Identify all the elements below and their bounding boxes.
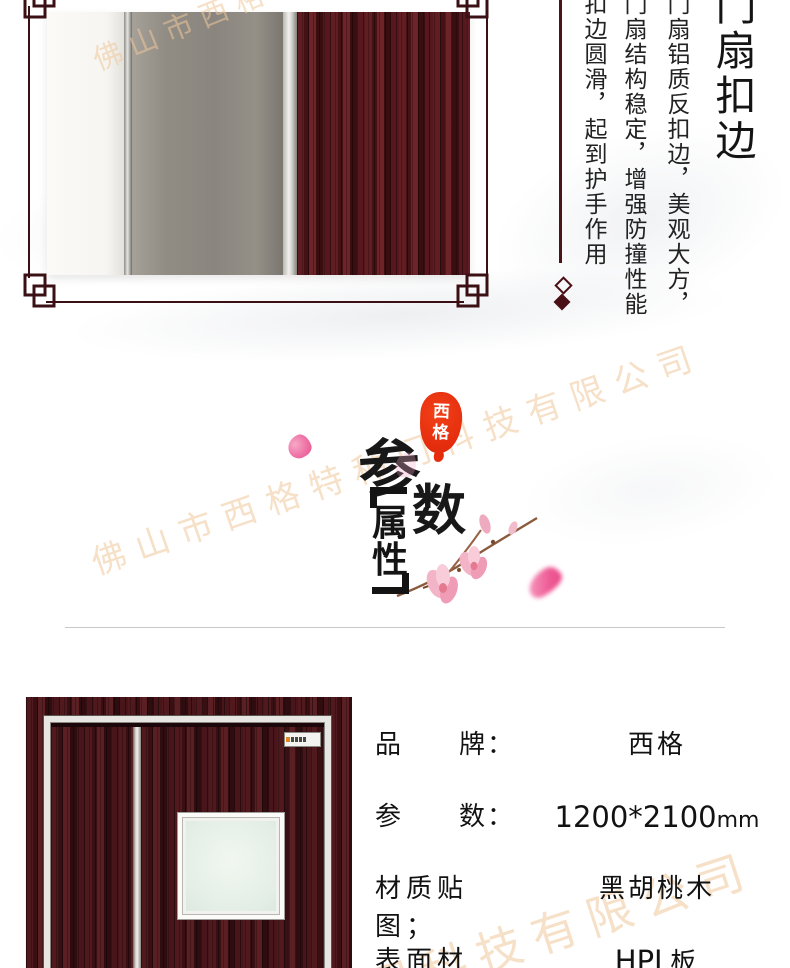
spec-row-texture: 材质贴图； 黑胡桃木 xyxy=(375,870,787,946)
corner-knot-icon xyxy=(453,270,491,308)
frame-line-left xyxy=(28,6,30,278)
aluminum-edge-line xyxy=(124,12,132,275)
product-detail-page: 门扇扣边 门扇铝质反扣边，美观大方， 门扇结构稳定，增强防撞性能 扣边圆滑，起到… xyxy=(0,0,790,968)
door-edge-photo xyxy=(47,12,470,275)
spec-row-size: 参 数： 1200*2100mm xyxy=(375,798,787,840)
section-subtitle: 属 性 xyxy=(372,505,406,579)
spec-label: 材质贴图； xyxy=(375,870,527,946)
door-product-photo xyxy=(25,697,352,968)
wood-grain-panel xyxy=(297,12,470,275)
accent-vertical-line xyxy=(559,0,562,263)
spec-value: 西格 xyxy=(527,726,787,764)
spec-row-surface: 表面材质： HPL板 xyxy=(375,942,787,968)
logo-chip xyxy=(286,737,290,742)
door-frame-right xyxy=(330,697,352,968)
frame-line-bottom xyxy=(46,301,464,303)
hero-title: 门扇扣边 xyxy=(702,0,762,164)
seal-char-top: 西 xyxy=(433,403,451,422)
spec-value: 1200*2100mm xyxy=(527,798,787,840)
hero-desc-col: 门扇结构稳定，增强防撞性能 xyxy=(616,0,650,317)
hero-desc-col: 门扇铝质反扣边，美观大方， xyxy=(659,0,693,317)
frosted-glass xyxy=(186,821,276,911)
attr-char-1: 属 xyxy=(372,505,406,542)
brand-seal-stamp: 西 格 xyxy=(419,391,463,453)
frame-line-right xyxy=(486,6,488,278)
spec-row-brand: 品 牌： 西格 xyxy=(375,726,787,764)
diamond-outline-icon xyxy=(554,276,572,294)
spec-value: HPL板 xyxy=(527,942,787,968)
door-vision-window xyxy=(177,812,285,920)
spec-label: 表面材质： xyxy=(375,942,527,968)
aluminum-channel-panel xyxy=(132,12,283,275)
door-frame-left xyxy=(26,697,46,968)
diamond-filled-icon xyxy=(554,294,571,311)
corner-knot-icon xyxy=(21,270,59,308)
aluminum-mullion-strip xyxy=(133,727,141,968)
hero-desc-col: 扣边圆滑，起到护手作用 xyxy=(576,0,610,267)
spec-label: 参 数： xyxy=(375,798,527,836)
seal-char-bottom: 格 xyxy=(432,424,450,443)
section-divider xyxy=(65,627,725,628)
attr-char-2: 性 xyxy=(372,542,406,579)
spec-label: 品 牌： xyxy=(375,726,527,764)
section-word-2: 数 xyxy=(412,466,466,545)
door-frame-top xyxy=(26,697,352,718)
corner-knot-icon xyxy=(453,0,491,22)
spec-value: 黑胡桃木 xyxy=(527,870,787,908)
door-logo-plate xyxy=(284,732,321,747)
door-face-white-panel xyxy=(47,12,124,275)
door-leaf-narrow xyxy=(51,727,133,968)
corner-knot-icon xyxy=(21,0,59,22)
petal-decoration xyxy=(285,432,314,461)
aluminum-strip-highlight xyxy=(283,12,297,275)
